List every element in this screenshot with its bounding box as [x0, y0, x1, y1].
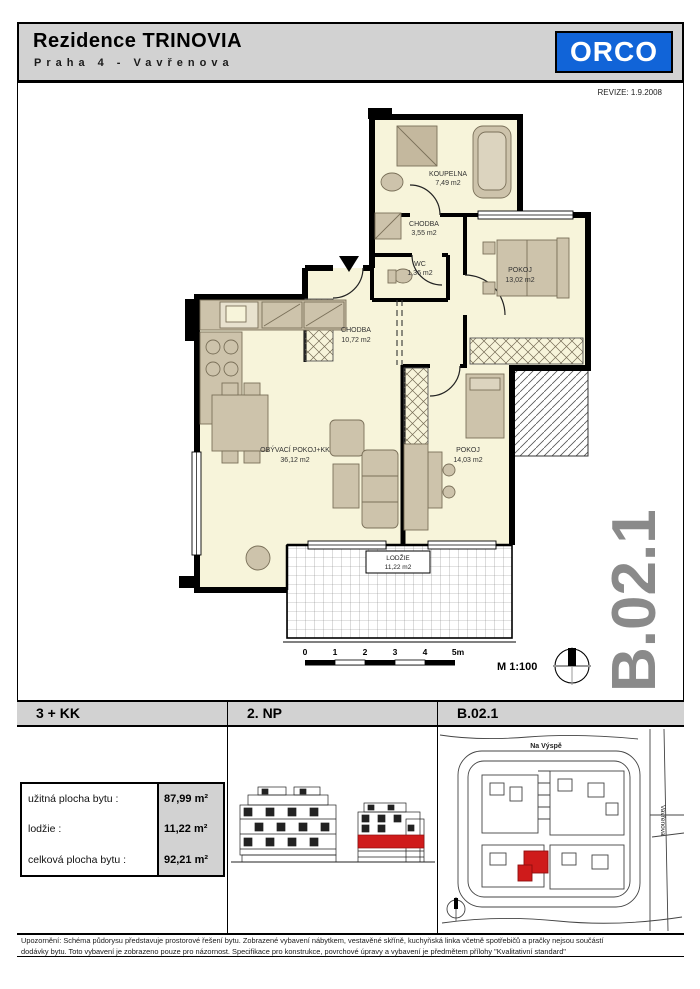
area-row-value: 87,99 m² — [157, 784, 223, 814]
title-bar: Rezidence TRINOVIA Praha 4 - Vavřenova O… — [17, 22, 684, 82]
table-row: celková plocha bytu : 92,21 m² — [22, 845, 223, 875]
disclaimer-line1: Upozornění: Schéma půdorysu představuje … — [21, 936, 680, 947]
highlighted-unit — [518, 851, 548, 881]
summary-header-row: 3 + KK 2. NP B.02.1 — [17, 700, 684, 727]
area-row-label: celková plocha bytu : — [22, 845, 157, 875]
site-plan-column: Na Výspě Vavřenova — [438, 727, 684, 933]
elevation-column — [228, 727, 438, 933]
site-compass-icon — [447, 897, 465, 921]
site-plan: Na Výspě Vavřenova — [438, 727, 684, 933]
table-row: lodžie : 11,22 m² — [22, 814, 223, 844]
area-row-value: 92,21 m² — [157, 845, 223, 875]
area-row-label: lodžie : — [22, 814, 157, 844]
street-name-top: Na Výspě — [530, 743, 562, 750]
area-table: užitná plocha bytu : 87,99 m² lodžie : 1… — [20, 782, 225, 877]
bottom-panel: užitná plocha bytu : 87,99 m² lodžie : 1… — [17, 727, 684, 933]
area-summary-column: užitná plocha bytu : 87,99 m² lodžie : 1… — [17, 727, 228, 933]
area-row-value: 11,22 m² — [157, 814, 223, 844]
disposition-label: 3 + KK — [17, 702, 228, 725]
highlighted-floor — [358, 835, 424, 848]
disclaimer-line2: dodávky bytu. Toto vybavení je zobrazeno… — [21, 947, 680, 958]
unit-label: B.02.1 — [438, 702, 684, 725]
building-elevation — [228, 767, 438, 877]
street-name-right: Vavřenova — [659, 805, 666, 836]
project-title: Rezidence TRINOVIA — [33, 30, 242, 53]
project-location: Praha 4 - Vavřenova — [34, 57, 234, 69]
area-row-label: užitná plocha bytu : — [22, 784, 157, 814]
disclaimer-box: Upozornění: Schéma půdorysu představuje … — [17, 933, 684, 957]
orco-logo: ORCO — [555, 31, 673, 73]
table-row: užitná plocha bytu : 87,99 m² — [22, 784, 223, 814]
floor-label: 2. NP — [228, 702, 438, 725]
